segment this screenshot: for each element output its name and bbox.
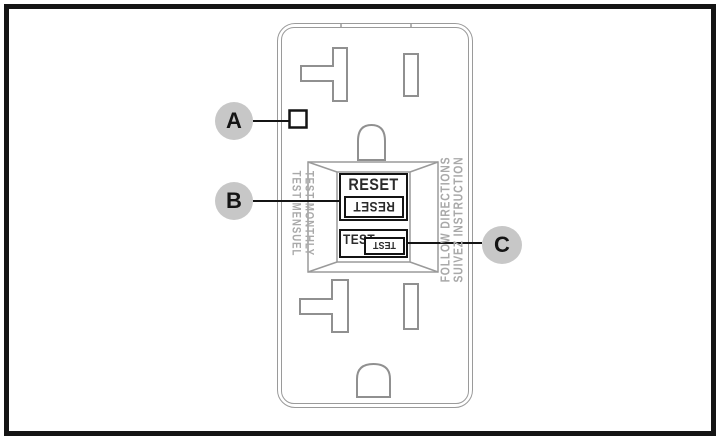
reset-label-inverted: RESET bbox=[350, 199, 398, 215]
marking-suivez-instruction: SUIVEZ INSTRUCTION bbox=[452, 144, 465, 296]
callout-c-label: C bbox=[494, 232, 510, 258]
diagram-canvas: RESET RESET TEST TEST TEST MONTHLY TEST … bbox=[0, 0, 720, 440]
marking-test-monthly: TEST MONTHLY bbox=[303, 166, 316, 262]
test-label-inverted: TEST bbox=[369, 239, 400, 251]
right-markings: FOLLOW DIRECTIONS SUIVEZ INSTRUCTION bbox=[440, 144, 465, 296]
callout-a-label: A bbox=[226, 108, 242, 134]
callout-c: C bbox=[482, 226, 522, 264]
reset-button-face: RESET bbox=[344, 196, 404, 218]
test-button-face: TEST bbox=[364, 237, 405, 255]
callout-b-label: B bbox=[226, 188, 242, 214]
callout-b: B bbox=[215, 182, 253, 220]
left-markings: TEST MONTHLY TEST MENSUEL bbox=[291, 166, 316, 262]
test-button: TEST TEST bbox=[339, 229, 408, 258]
marking-test-mensuel: TEST MENSUEL bbox=[291, 166, 304, 262]
reset-button: RESET RESET bbox=[339, 173, 408, 221]
callout-a: A bbox=[215, 102, 253, 140]
reset-label: RESET bbox=[346, 175, 401, 195]
